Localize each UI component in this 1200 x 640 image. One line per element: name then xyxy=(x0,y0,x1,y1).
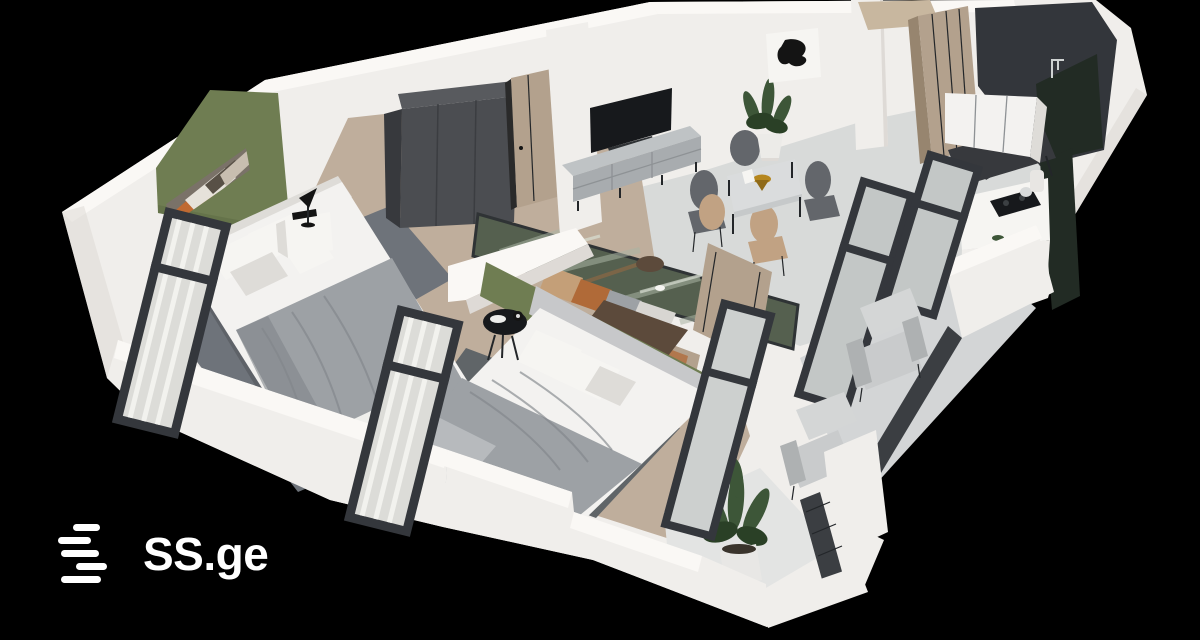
ssge-logo-icon xyxy=(58,524,116,583)
art-speckle xyxy=(793,60,797,64)
clock-face xyxy=(516,314,520,318)
cup xyxy=(655,285,665,291)
logo-bar xyxy=(61,576,101,583)
dish xyxy=(490,315,506,323)
plant-pot-shade xyxy=(761,158,779,161)
wardrobe-side xyxy=(384,109,402,228)
dining-chair-back xyxy=(805,161,831,199)
lamp-base xyxy=(301,223,315,228)
floorplan-image: SS.ge xyxy=(0,0,1200,640)
wood-chair-back xyxy=(699,194,725,230)
door-handle xyxy=(519,146,523,150)
logo-bar xyxy=(76,563,107,570)
cooktop-burner xyxy=(1003,200,1009,206)
plant-pot xyxy=(757,134,783,158)
dining-chair-back xyxy=(730,130,760,166)
ssge-watermark-logo: SS.ge xyxy=(58,524,268,583)
pot-soil xyxy=(722,544,756,554)
ssge-logo-text: SS.ge xyxy=(143,531,268,577)
side-table xyxy=(636,256,664,272)
nightstand-leg xyxy=(502,334,503,358)
coffee-machine xyxy=(1030,170,1044,192)
logo-bar xyxy=(61,550,99,557)
logo-bar xyxy=(73,524,100,531)
logo-bar xyxy=(58,537,91,544)
wardrobe-front xyxy=(400,96,518,228)
